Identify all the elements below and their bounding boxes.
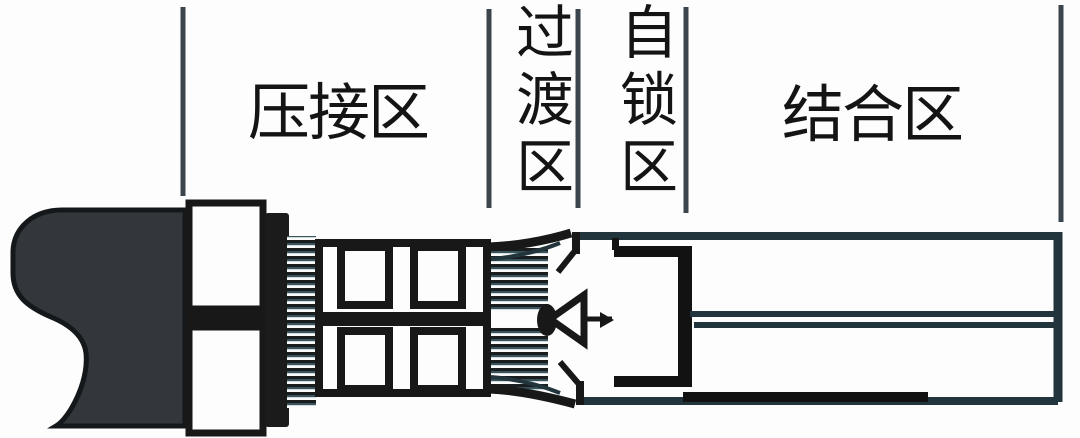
selflock-sleeve-bottom-bar <box>614 376 692 387</box>
wire-insulation-body <box>13 210 185 426</box>
crimp-indent-window-1 <box>341 247 389 305</box>
ferrule-top-half <box>189 203 263 309</box>
body-bottom-wall-thick-segment <box>683 392 928 402</box>
selflock-sleeve-right-bar <box>678 246 692 387</box>
ferrule-bottom-half <box>189 327 263 433</box>
barrel-middle-band <box>315 312 491 326</box>
wire-strands-left <box>287 236 316 408</box>
crimp-indent-window-3 <box>341 331 389 389</box>
ferrule-middle-band <box>186 311 266 325</box>
transition-strands <box>489 233 614 404</box>
joint-slot-line-bottom <box>694 322 1058 328</box>
zone-label-crimp: 压接区 <box>248 82 428 146</box>
strand-band-bottom <box>489 389 575 404</box>
figure-connector-zones: 压接区 过渡区 自锁区 结合区 <box>0 0 1080 438</box>
funnel-cone <box>550 295 584 343</box>
body-top-mouth-flare <box>558 252 574 272</box>
insulation-crimp-ferrule <box>186 203 289 433</box>
contact-body <box>558 232 1058 405</box>
zone-label-self-lock: 自锁区 <box>612 2 674 217</box>
body-bottom-mouth-flare <box>560 362 578 383</box>
selflock-sleeve-top-tick <box>612 238 619 250</box>
strand-hatch-left <box>287 236 316 408</box>
zone-label-joint: 结合区 <box>782 84 962 148</box>
joint-slot-line-top <box>690 311 1058 317</box>
conductor-crimp-barrel <box>315 243 491 393</box>
crimp-indent-window-2 <box>414 247 462 305</box>
insulation-seal-band <box>265 213 289 427</box>
wire-insulation <box>13 210 185 426</box>
crimp-indent-window-4 <box>414 331 462 389</box>
zone-label-transition: 过渡区 <box>508 2 570 217</box>
